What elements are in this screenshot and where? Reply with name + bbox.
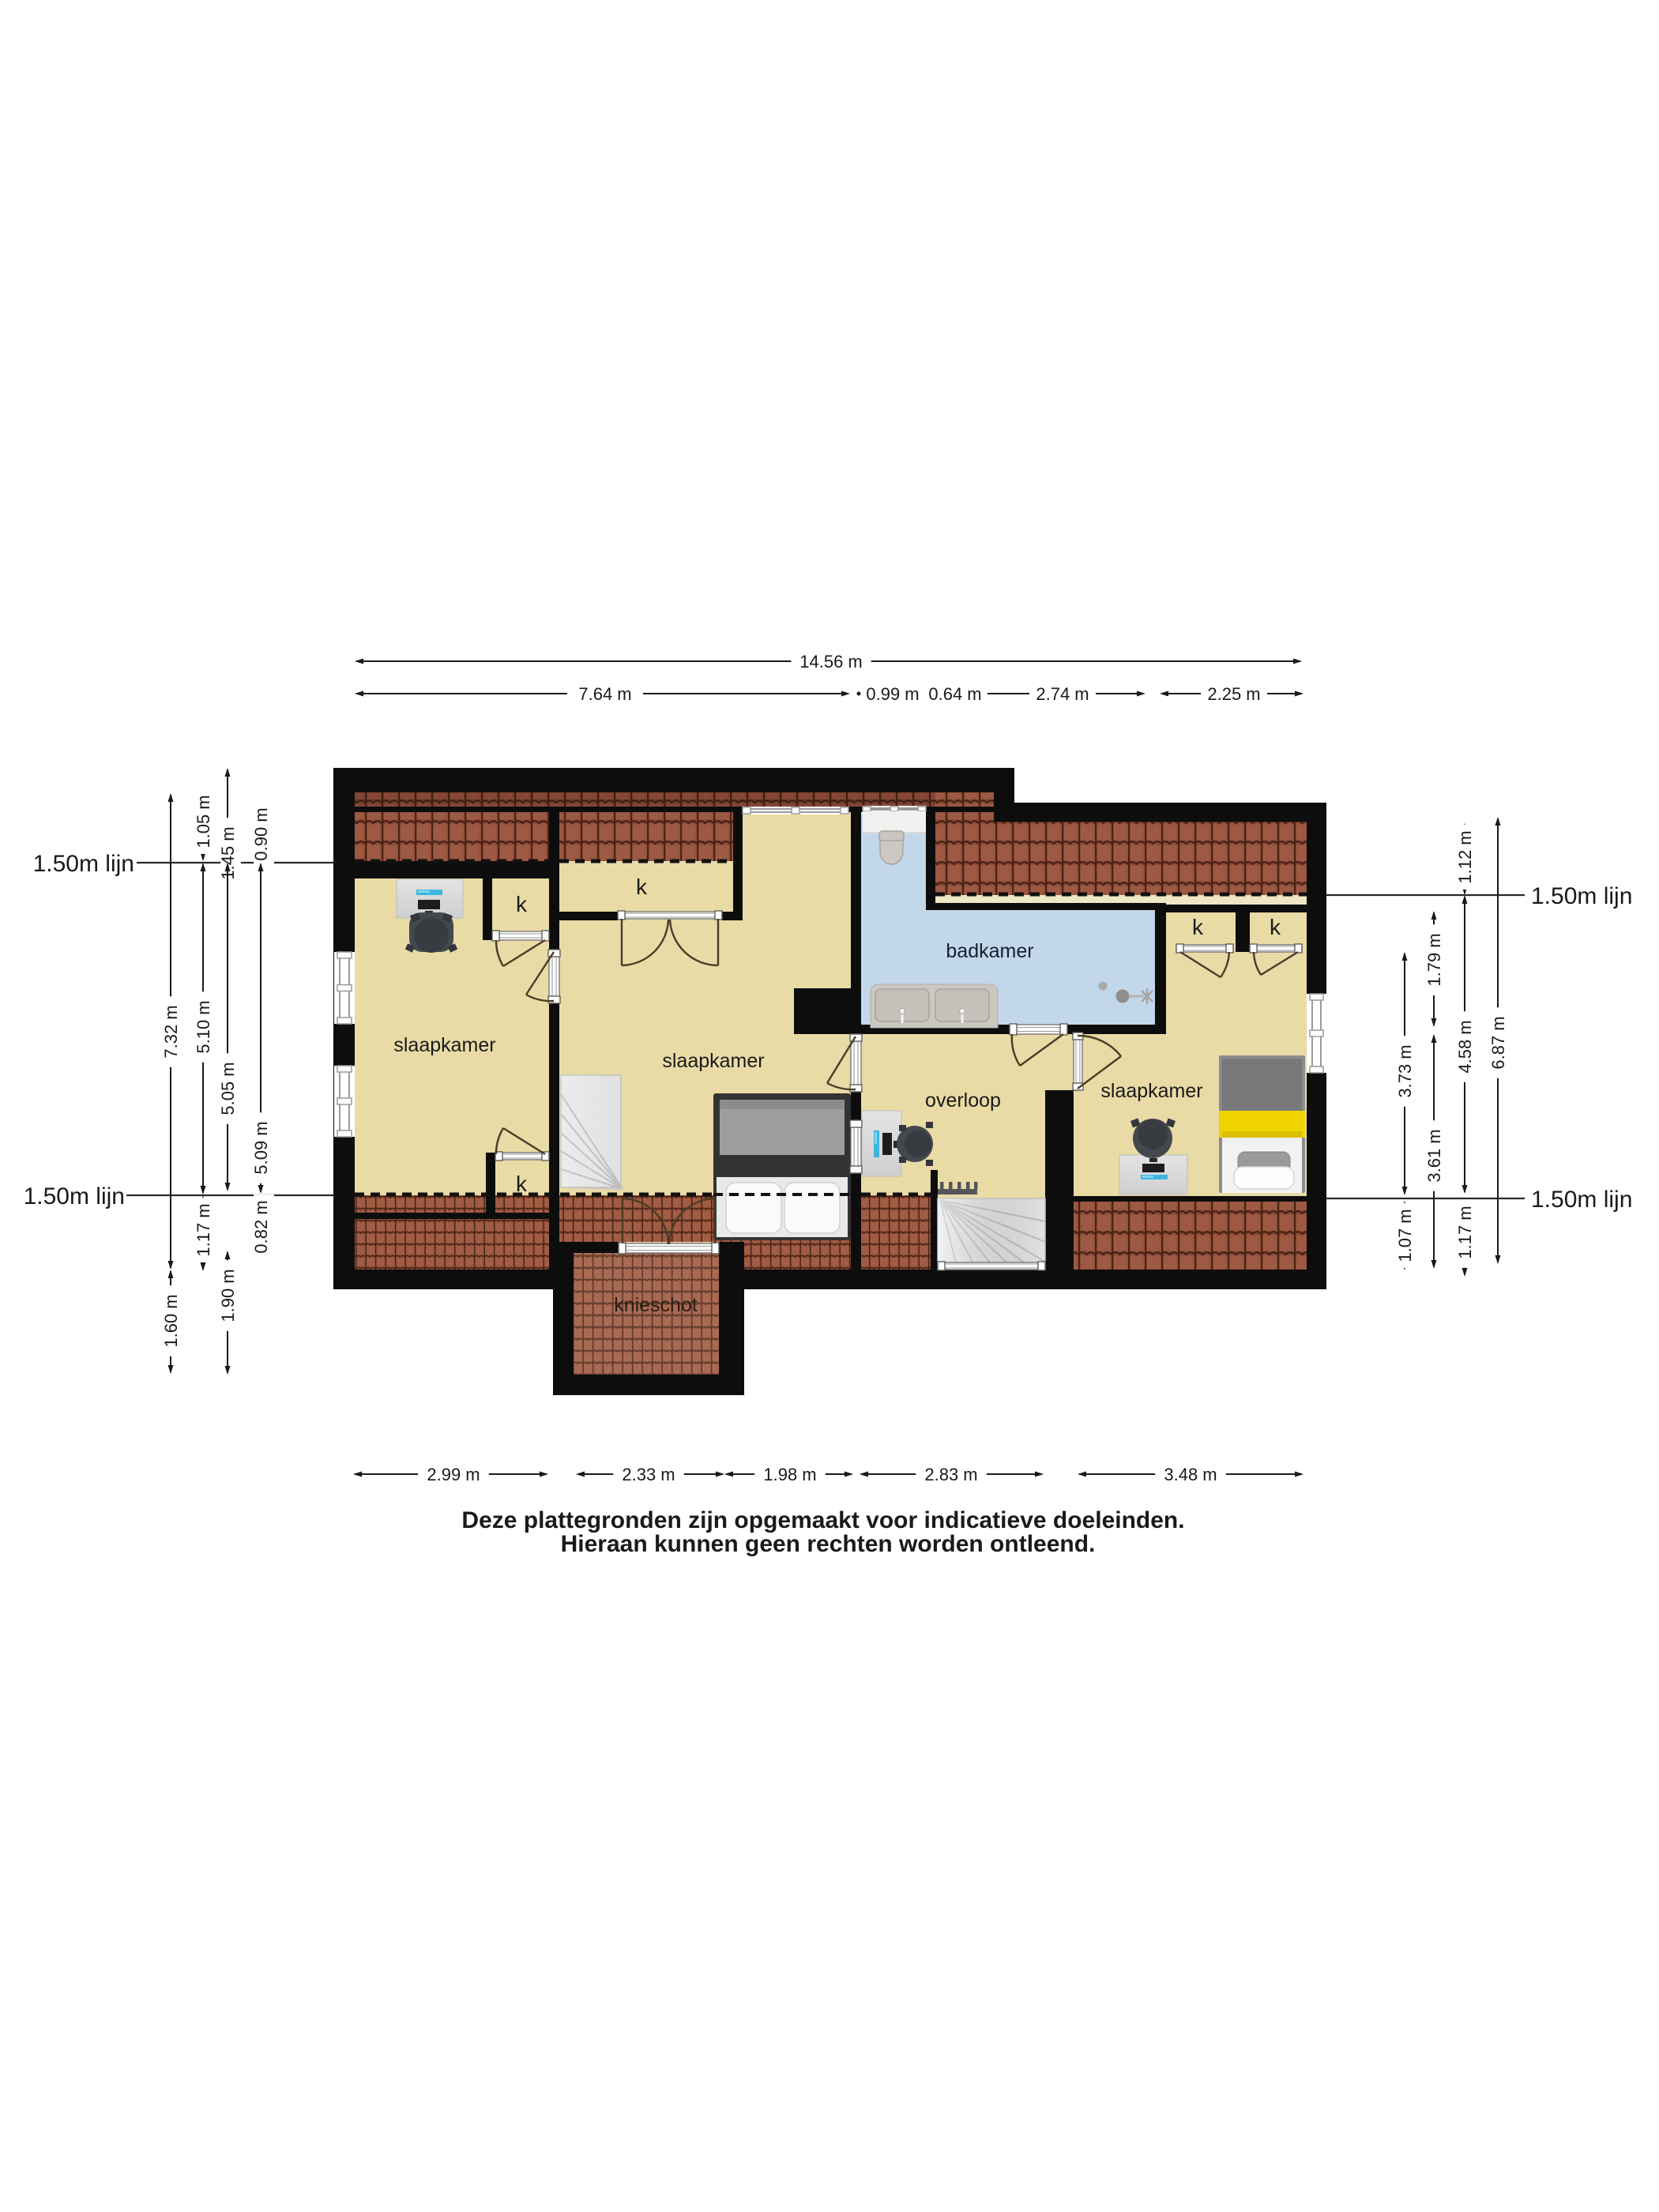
svg-text:2.99 m: 2.99 m (427, 1465, 480, 1484)
svg-text:1.12 m: 1.12 m (1455, 830, 1475, 883)
svg-text:5.05 m: 5.05 m (218, 1062, 238, 1115)
svg-text:Hieraan kunnen geen rechten wo: Hieraan kunnen geen rechten worden ontle… (561, 1531, 1096, 1557)
svg-text:1.79 m: 1.79 m (1424, 933, 1444, 986)
svg-text:5.09 m: 5.09 m (251, 1121, 271, 1174)
svg-text:1.50m lijn: 1.50m lijn (1531, 1187, 1632, 1213)
svg-text:badkamer: badkamer (946, 940, 1033, 962)
svg-text:1.60 m: 1.60 m (161, 1294, 181, 1347)
svg-text:0.90 m: 0.90 m (251, 807, 271, 860)
svg-text:1.05 m: 1.05 m (194, 795, 213, 848)
svg-text:k: k (1192, 915, 1204, 939)
svg-text:1.50m lijn: 1.50m lijn (1531, 883, 1632, 909)
svg-text:2.83 m: 2.83 m (924, 1465, 977, 1484)
svg-text:1.17 m: 1.17 m (194, 1203, 213, 1256)
svg-text:6.87 m: 6.87 m (1488, 1016, 1508, 1069)
svg-text:7.32 m: 7.32 m (161, 1005, 181, 1058)
svg-text:0.99 m: 0.99 m (866, 684, 919, 704)
svg-text:0.64 m: 0.64 m (928, 684, 981, 704)
svg-text:3.73 m: 3.73 m (1395, 1044, 1415, 1097)
svg-text:1.98 m: 1.98 m (763, 1465, 816, 1484)
svg-text:1.17 m: 1.17 m (1455, 1206, 1475, 1258)
svg-text:3.48 m: 3.48 m (1164, 1465, 1217, 1484)
svg-text:2.25 m: 2.25 m (1207, 684, 1260, 704)
svg-text:2.74 m: 2.74 m (1036, 684, 1089, 704)
svg-text:5.10 m: 5.10 m (194, 1000, 213, 1053)
svg-text:k: k (1270, 915, 1281, 939)
svg-text:1.90 m: 1.90 m (218, 1269, 238, 1322)
svg-text:1.50m lijn: 1.50m lijn (33, 851, 134, 877)
svg-text:3.61 m: 3.61 m (1424, 1129, 1444, 1182)
svg-text:slaapkamer: slaapkamer (662, 1050, 764, 1072)
svg-text:7.64 m: 7.64 m (578, 684, 631, 704)
svg-text:1.07 m: 1.07 m (1395, 1209, 1415, 1262)
svg-text:k: k (516, 892, 528, 916)
svg-text:knieschot: knieschot (614, 1294, 698, 1316)
svg-text:4.58 m: 4.58 m (1455, 1020, 1475, 1073)
svg-text:k: k (636, 875, 648, 899)
svg-text:0.82 m: 0.82 m (251, 1200, 271, 1253)
svg-text:1.50m lijn: 1.50m lijn (24, 1183, 125, 1209)
svg-text:14.56 m: 14.56 m (799, 652, 863, 671)
svg-text:slaapkamer: slaapkamer (393, 1034, 495, 1056)
svg-text:overloop: overloop (925, 1089, 1001, 1112)
svg-text:k: k (516, 1172, 528, 1196)
svg-text:2.33 m: 2.33 m (622, 1465, 675, 1484)
svg-text:slaapkamer: slaapkamer (1100, 1080, 1202, 1102)
svg-text:Deze plattegronden zijn opgema: Deze plattegronden zijn opgemaakt voor i… (461, 1507, 1184, 1533)
